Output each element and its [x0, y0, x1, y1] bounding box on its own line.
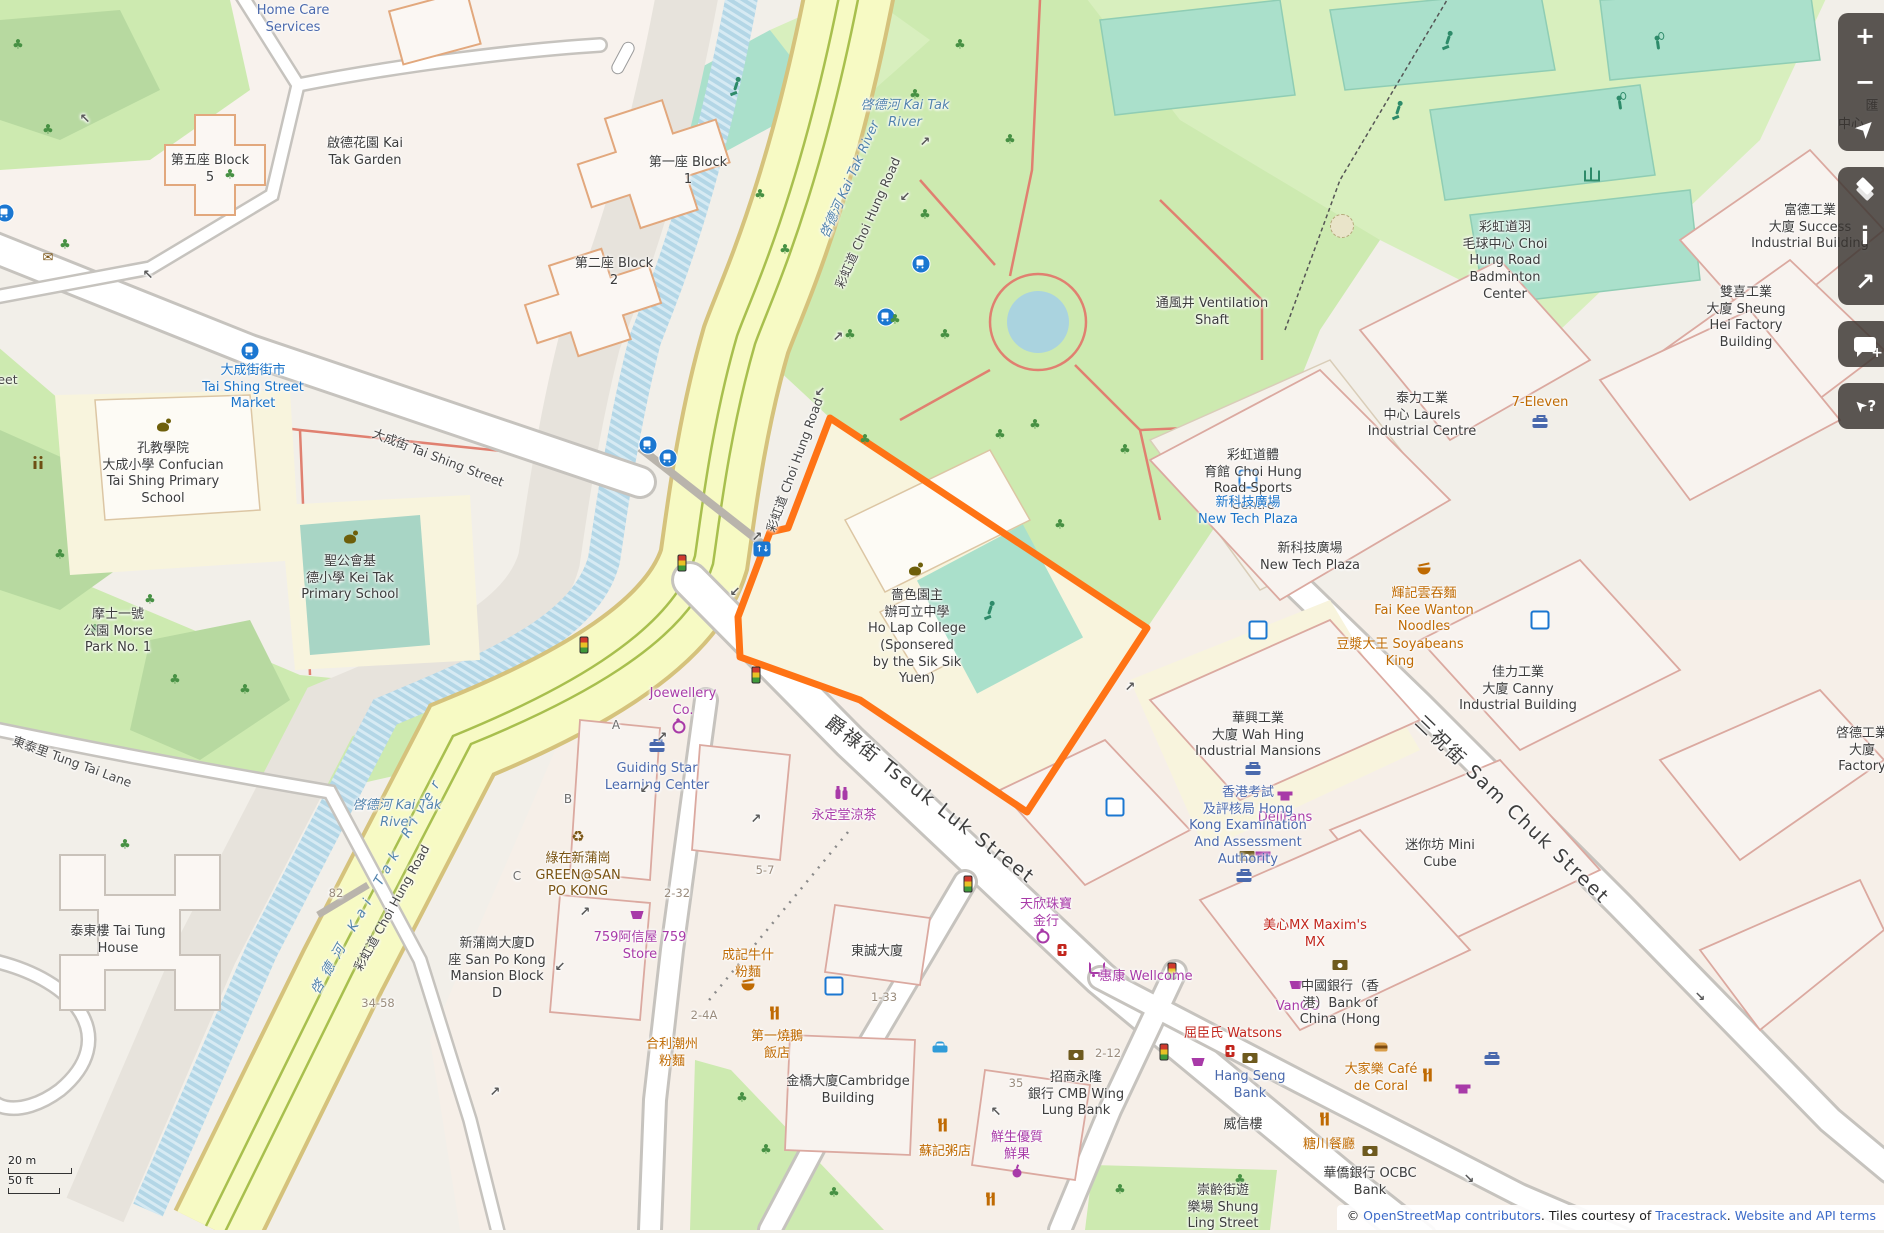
attribution-prefix: © — [1347, 1208, 1363, 1223]
pond — [1007, 291, 1069, 353]
add-note-button[interactable] — [1838, 321, 1884, 367]
info-button[interactable]: i — [1838, 213, 1884, 259]
map-canvas[interactable]: ↑↓♻✉♣♣♣♣♣♣♣♣♣♣♣♣♣♣♣♣♣♣♣♣♣♣♣♣♣♣♣♣♣ Home C… — [0, 0, 1884, 1230]
share-button[interactable]: ↗ — [1838, 259, 1884, 305]
layers-icon — [1855, 182, 1875, 198]
osm-contributors-link[interactable]: OpenStreetMap contributors — [1363, 1208, 1541, 1223]
attribution-middle: . Tiles courtesy of — [1541, 1208, 1655, 1223]
add-note-icon — [1854, 337, 1876, 352]
control-group: +−➤ — [1838, 13, 1884, 151]
scale-indicator: 20 m 50 ft — [8, 1154, 72, 1194]
attribution-bar: © OpenStreetMap contributors. Tiles cour… — [1337, 1205, 1884, 1230]
terms-link[interactable]: Website and API terms — [1735, 1208, 1876, 1223]
tracestrack-link[interactable]: Tracestrack — [1655, 1208, 1726, 1223]
zoom-in-button[interactable]: + — [1838, 13, 1884, 59]
layers-button[interactable] — [1838, 167, 1884, 213]
scale-imperial: 50 ft — [8, 1174, 72, 1187]
control-group: ➤? — [1838, 383, 1884, 429]
geolocate-button[interactable]: ➤ — [1838, 105, 1884, 151]
zoom-out-button[interactable]: − — [1838, 59, 1884, 105]
query-features-button[interactable]: ➤? — [1838, 383, 1884, 429]
control-group — [1838, 321, 1884, 367]
scale-imperial-bar — [8, 1188, 60, 1194]
map-controls[interactable]: +−➤i↗➤? — [1838, 13, 1884, 445]
control-group: i↗ — [1838, 167, 1884, 305]
map-base — [0, 0, 1884, 1230]
scale-metric: 20 m — [8, 1154, 72, 1167]
